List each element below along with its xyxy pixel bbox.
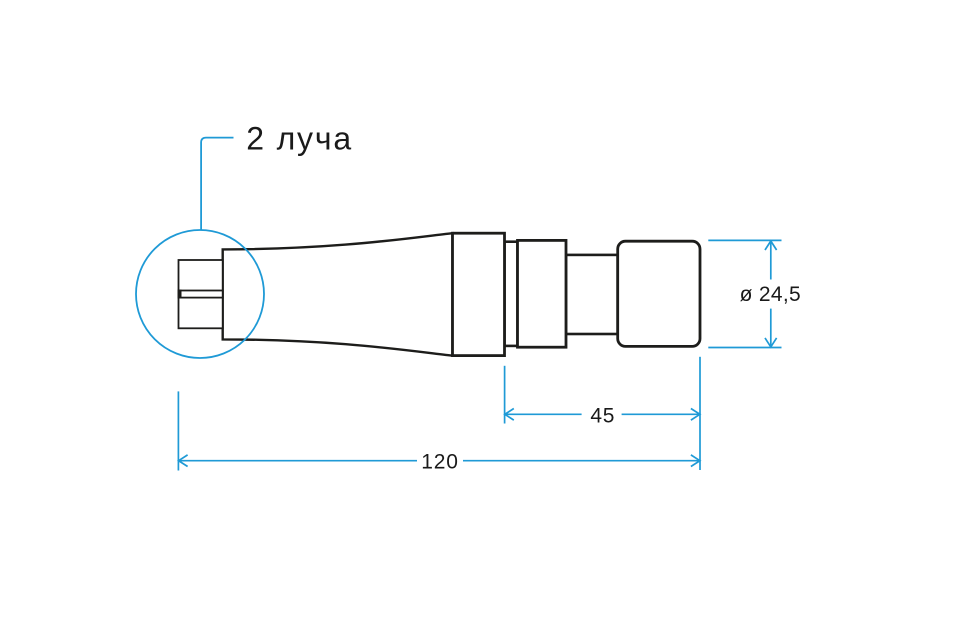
svg-text:120: 120 bbox=[421, 450, 458, 473]
svg-text:45: 45 bbox=[590, 404, 615, 427]
svg-text:2 луча: 2 луча bbox=[246, 121, 353, 157]
svg-text:ø 24,5: ø 24,5 bbox=[740, 283, 801, 306]
